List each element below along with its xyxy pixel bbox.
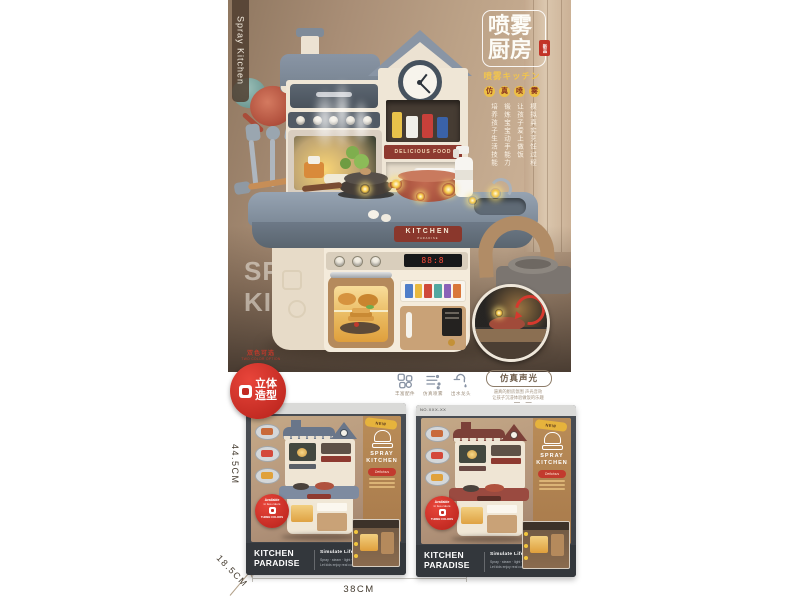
kitchen-sign: KITCHEN PARADISE [394,226,462,242]
oven-glass [334,286,388,342]
box-detail-inset [352,519,400,567]
accessories-icon [394,372,416,390]
feature-accessories: 丰富配件 [394,372,416,397]
package-box-blue: NO.XXX-XX [246,403,406,575]
sparkle [390,178,402,190]
feature-faucet: 出水龙头 [450,372,472,397]
cn-title-block: 喷雾 厨房 新品 喷雾キッチン 仿真喷雾 模拟真实烹饪过程 让孩子爱上做饭 锻炼… [480,10,546,191]
steam-wisp [352,98,370,146]
condiment-shelf [386,100,460,142]
chef-hat-icon [374,430,391,442]
detail-inset-circle [472,284,550,362]
color-option-badge: Available in two colors THREE COLORS [255,494,289,528]
digital-display: 88:8 [404,254,462,267]
color-option-badge: Available in two colors THREE COLORS [425,496,459,530]
spray-bottle [452,146,476,198]
steam-wisp [332,78,352,150]
hang-strip: NO.XXX-XX [416,405,576,416]
solid-shape-badge: 立体 造型 [230,363,286,419]
egg [368,210,379,219]
oven-handle [330,272,392,278]
delicious-ribbon: Delicious [538,470,566,478]
accessory-inset [425,448,450,464]
cube-icon [239,385,252,398]
page-canvas: SPRAY KITCHEN [0,0,800,600]
hero-photo: SPRAY KITCHEN [228,0,571,372]
mini-kitchen [277,420,361,540]
sparkle [468,196,477,205]
sparkle [360,184,370,194]
width-dim-line [252,578,466,579]
door-handle [406,312,412,338]
accessory-inset [255,446,280,462]
width-dim-label: 38CM [252,584,466,595]
cabinet-side [272,248,326,350]
feature-badges: 仿真喷雾 [480,86,544,97]
mini-kitchen [447,422,531,542]
accessory-inset [425,470,450,486]
sparkle [442,183,455,196]
cn-title-box: 喷雾 厨房 新品 [482,10,546,67]
accessory-inset [255,424,280,440]
tick [252,575,253,582]
egg [381,214,391,222]
jp-subtitle: 喷雾キッチン [480,70,544,82]
spray-icon [422,372,444,390]
delicious-food-sign: DELICIOUS FOOD [384,145,462,159]
sink [474,198,526,215]
delicious-ribbon: Delicious [368,468,396,476]
chimney-body [301,36,319,56]
sparkle [416,192,425,201]
red-pot-rim [398,170,458,182]
box-detail-inset [522,521,570,569]
sell-points: 模拟真实烹饪过程 让孩子爱上做饭 锻炼宝宝动手能力 培养孩子生活技能 [480,103,544,191]
package-box-red: NO.XXX-XX [416,405,576,577]
sticker-panel [400,280,466,302]
faucet-icon [450,372,472,390]
height-dim-label: 44.5CM [230,444,240,485]
brand-logo: KITCHENPARADISE [254,549,300,568]
accessory-inset [255,468,280,484]
new-seal: 新品 [539,40,550,56]
brand-logo: KITCHENPARADISE [424,551,470,570]
lid-knob [360,168,371,175]
chef-hat-icon [544,432,561,444]
depth-dim-label: 18.5CM [215,553,250,589]
cabinet-door [400,306,466,350]
sound-light-label: 仿真声光 [486,370,552,387]
two-color-note: 双色可选 TWO COLOR OPTION [232,348,290,361]
side-tag: Spray Kitchen [232,0,249,102]
clock [398,60,442,104]
gray-bowl [508,256,558,274]
accessory-inset [425,426,450,442]
cabinet-control-strip: 88:8 [326,252,468,270]
feature-spray: 仿真喷雾 [422,372,444,397]
